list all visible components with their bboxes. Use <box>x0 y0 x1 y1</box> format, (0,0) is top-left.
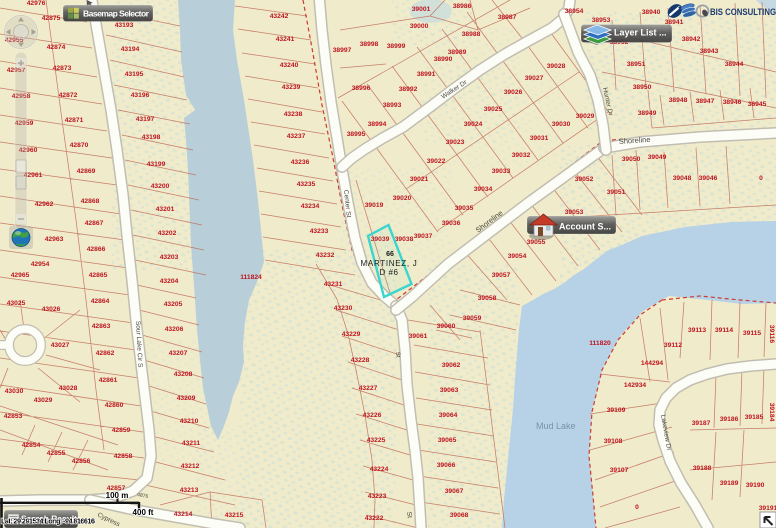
svg-text:St: St <box>405 511 413 518</box>
svg-text:42873: 42873 <box>53 65 72 72</box>
svg-text:43204: 43204 <box>160 278 179 285</box>
svg-text:42862: 42862 <box>96 350 115 357</box>
svg-text:42872: 42872 <box>59 92 78 99</box>
svg-text:43228: 43228 <box>351 357 370 364</box>
svg-text:43207: 43207 <box>169 350 188 357</box>
svg-text:39034: 39034 <box>474 186 493 193</box>
svg-text:43227: 43227 <box>359 385 378 392</box>
svg-text:43224: 43224 <box>370 466 389 473</box>
svg-text:43205: 43205 <box>164 301 183 308</box>
svg-text:38986: 38986 <box>453 3 472 10</box>
svg-text:39033: 39033 <box>492 168 511 175</box>
svg-text:43236: 43236 <box>291 159 310 166</box>
svg-text:43025: 43025 <box>7 300 26 307</box>
svg-text:43235: 43235 <box>297 181 316 188</box>
svg-text:42859: 42859 <box>112 427 131 434</box>
svg-text:43225: 43225 <box>367 437 386 444</box>
svg-text:Account S...: Account S... <box>559 222 611 232</box>
svg-text:42860: 42860 <box>105 402 124 409</box>
svg-text:43226: 43226 <box>363 412 382 419</box>
svg-text:39046: 39046 <box>699 175 718 182</box>
svg-text:38953: 38953 <box>592 17 611 24</box>
svg-text:42854: 42854 <box>22 442 41 449</box>
svg-text:38950: 38950 <box>633 84 652 91</box>
svg-text:39026: 39026 <box>504 89 523 96</box>
svg-text:43196: 43196 <box>131 92 150 99</box>
svg-text:39184: 39184 <box>768 403 775 422</box>
svg-text:39113: 39113 <box>688 327 707 334</box>
svg-text:38946: 38946 <box>723 99 742 106</box>
svg-text:43239: 43239 <box>282 84 301 91</box>
svg-text:39055: 39055 <box>527 239 546 246</box>
svg-text:39028: 39028 <box>547 63 566 70</box>
svg-text:39030: 39030 <box>552 121 571 128</box>
svg-text:0: 0 <box>759 175 763 182</box>
svg-text:39058: 39058 <box>478 295 497 302</box>
svg-text:39108: 39108 <box>604 438 623 445</box>
svg-text:43208: 43208 <box>174 371 193 378</box>
svg-text:43231: 43231 <box>324 281 343 288</box>
svg-text:38940: 38940 <box>642 9 661 16</box>
svg-text:42858: 42858 <box>114 453 133 460</box>
svg-text:43234: 43234 <box>301 203 320 210</box>
svg-text:42865: 42865 <box>89 272 108 279</box>
svg-text:43230: 43230 <box>334 305 353 312</box>
svg-text:42963: 42963 <box>45 236 64 243</box>
svg-text:39068: 39068 <box>450 512 469 519</box>
svg-text:39189: 39189 <box>720 480 739 487</box>
svg-text:38998: 38998 <box>360 41 379 48</box>
svg-text:400 ft: 400 ft <box>133 508 154 517</box>
svg-text:39186: 39186 <box>720 416 739 423</box>
svg-text:38987: 38987 <box>498 14 517 21</box>
svg-text:39053: 39053 <box>565 209 584 216</box>
svg-text:38945: 38945 <box>748 101 767 108</box>
svg-text:43195: 43195 <box>125 71 144 78</box>
svg-text:39114: 39114 <box>715 327 734 334</box>
svg-text:38949: 38949 <box>638 110 657 117</box>
svg-text:38994: 38994 <box>368 121 387 128</box>
svg-text:38954: 38954 <box>565 8 584 15</box>
svg-text:39025: 39025 <box>484 106 503 113</box>
svg-text:39032: 39032 <box>512 152 531 159</box>
svg-text:MARTINEZ, J: MARTINEZ, J <box>361 259 418 268</box>
svg-text:43026: 43026 <box>42 306 61 313</box>
svg-text:38997: 38997 <box>333 47 352 54</box>
svg-text:111820: 111820 <box>589 340 611 347</box>
svg-text:42868: 42868 <box>81 198 100 205</box>
svg-text:38991: 38991 <box>417 71 436 78</box>
svg-text:39187: 39187 <box>692 420 711 427</box>
svg-text:43198: 43198 <box>142 134 161 141</box>
svg-text:39067: 39067 <box>445 488 464 495</box>
svg-text:39031: 39031 <box>530 135 549 142</box>
svg-text:39061: 39061 <box>409 333 428 340</box>
svg-text:42870: 42870 <box>70 142 89 149</box>
svg-text:39029: 39029 <box>576 113 595 120</box>
svg-text:43209: 43209 <box>177 395 196 402</box>
svg-text:39190: 39190 <box>746 482 765 489</box>
svg-text:42864: 42864 <box>91 298 110 305</box>
svg-text:38944: 38944 <box>725 61 744 68</box>
svg-text:42866: 42866 <box>87 246 106 253</box>
svg-text:38947: 38947 <box>696 98 715 105</box>
svg-text:39049: 39049 <box>648 154 667 161</box>
svg-text:42965: 42965 <box>11 272 30 279</box>
svg-text:43237: 43237 <box>287 133 306 140</box>
svg-text:43193: 43193 <box>115 22 134 29</box>
svg-text:39112: 39112 <box>664 342 683 349</box>
svg-text:43194: 43194 <box>121 46 140 53</box>
svg-text:BIS CONSULTING: BIS CONSULTING <box>710 7 776 18</box>
svg-text:39000: 39000 <box>410 23 429 30</box>
svg-text:42875: 42875 <box>42 15 61 22</box>
svg-text:38996: 38996 <box>352 85 371 92</box>
svg-text:St: St <box>394 352 401 359</box>
svg-text:38990: 38990 <box>434 56 453 63</box>
svg-text:43211: 43211 <box>182 440 201 447</box>
svg-text:39022: 39022 <box>427 158 446 165</box>
svg-text:39059: 39059 <box>463 315 482 322</box>
svg-text:42954: 42954 <box>31 261 50 268</box>
svg-text:43238: 43238 <box>284 111 303 118</box>
svg-text:39051: 39051 <box>607 189 626 196</box>
svg-text:111824: 111824 <box>240 274 262 281</box>
svg-text:38951: 38951 <box>627 61 646 68</box>
svg-text:38989: 38989 <box>448 49 467 56</box>
svg-text:39063: 39063 <box>440 387 459 394</box>
svg-text:43223: 43223 <box>368 493 387 500</box>
svg-text:43215: 43215 <box>225 512 244 519</box>
svg-text:38942: 38942 <box>682 36 701 43</box>
svg-text:39019: 39019 <box>365 202 384 209</box>
svg-text:39185: 39185 <box>745 414 764 421</box>
svg-text:38948: 38948 <box>669 97 688 104</box>
svg-text:43210: 43210 <box>180 418 199 425</box>
svg-text:39052: 39052 <box>575 176 594 183</box>
svg-text:39107: 39107 <box>610 467 629 474</box>
svg-text:43214: 43214 <box>174 511 193 518</box>
svg-text:39050: 39050 <box>622 156 641 163</box>
svg-text:43233: 43233 <box>310 228 329 235</box>
svg-text:43202: 43202 <box>158 230 177 237</box>
svg-text:Layer List ...: Layer List ... <box>614 28 667 38</box>
svg-text:39115: 39115 <box>743 330 762 337</box>
svg-text:43200: 43200 <box>151 183 170 190</box>
svg-text:43241: 43241 <box>276 36 295 43</box>
svg-text:39188: 39188 <box>693 465 712 472</box>
svg-text:42855: 42855 <box>47 450 66 457</box>
svg-text:43027: 43027 <box>51 342 70 349</box>
svg-text:43029: 43029 <box>34 397 53 404</box>
svg-text:39062: 39062 <box>442 362 461 369</box>
svg-text:43028: 43028 <box>59 385 78 392</box>
svg-text:42863: 42863 <box>92 323 111 330</box>
svg-text:39036: 39036 <box>442 220 461 227</box>
svg-text:39057: 39057 <box>492 272 511 279</box>
svg-text:42869: 42869 <box>77 168 96 175</box>
svg-text:43242: 43242 <box>270 13 289 20</box>
svg-text:142934: 142934 <box>624 382 647 389</box>
svg-text:42962: 42962 <box>35 201 54 208</box>
svg-text:39048: 39048 <box>673 175 692 182</box>
svg-text:43240: 43240 <box>280 62 299 69</box>
svg-text:Basemap Selector: Basemap Selector <box>83 9 150 19</box>
svg-text:39037: 39037 <box>414 233 433 240</box>
svg-text:43213: 43213 <box>180 487 199 494</box>
svg-text:43229: 43229 <box>342 331 361 338</box>
svg-text:38993: 38993 <box>383 102 402 109</box>
svg-text:42867: 42867 <box>85 220 104 227</box>
svg-text:38995: 38995 <box>347 131 366 138</box>
svg-text:43199: 43199 <box>147 161 166 168</box>
svg-text:39064: 39064 <box>439 412 458 419</box>
svg-text:43197: 43197 <box>136 116 155 123</box>
svg-text:43030: 43030 <box>5 388 24 395</box>
svg-text:39001: 39001 <box>412 6 431 13</box>
svg-text:0: 0 <box>635 504 639 511</box>
svg-text:38992: 38992 <box>399 86 418 93</box>
svg-text:42871: 42871 <box>65 117 84 124</box>
svg-text:39060: 39060 <box>437 323 456 330</box>
svg-text:38999: 38999 <box>387 43 406 50</box>
svg-text:43222: 43222 <box>365 515 384 522</box>
svg-text:Lat: 29.291534 Long: -94.81661: Lat: 29.291534 Long: -94.816616 <box>1 517 95 526</box>
svg-text:39035: 39035 <box>455 205 474 212</box>
svg-text:38988: 38988 <box>462 31 481 38</box>
svg-text:39109: 39109 <box>607 407 626 414</box>
svg-text:39054: 39054 <box>508 253 527 260</box>
svg-text:39191: 39191 <box>759 505 776 512</box>
svg-text:39038: 39038 <box>395 236 414 243</box>
svg-text:D #6: D #6 <box>380 268 399 277</box>
svg-text:43232: 43232 <box>316 252 335 259</box>
svg-text:39065: 39065 <box>438 437 457 444</box>
svg-text:42874: 42874 <box>47 44 66 51</box>
svg-text:38943: 38943 <box>700 48 719 55</box>
svg-text:39020: 39020 <box>393 195 412 202</box>
svg-text:42861: 42861 <box>99 377 118 384</box>
svg-text:42853: 42853 <box>4 413 23 420</box>
svg-text:39023: 39023 <box>446 139 465 146</box>
svg-text:Mud Lake: Mud Lake <box>536 421 576 431</box>
svg-text:39027: 39027 <box>525 75 544 82</box>
svg-text:42976: 42976 <box>27 0 46 7</box>
svg-text:43201: 43201 <box>156 206 175 213</box>
svg-text:43212: 43212 <box>181 463 200 470</box>
svg-text:39116: 39116 <box>768 325 775 344</box>
svg-text:144294: 144294 <box>641 360 664 367</box>
svg-text:100 m: 100 m <box>106 491 129 500</box>
svg-text:66: 66 <box>386 251 394 258</box>
svg-text:43206: 43206 <box>165 326 184 333</box>
svg-text:39021: 39021 <box>410 176 429 183</box>
svg-text:39066: 39066 <box>437 462 456 469</box>
svg-text:42856: 42856 <box>72 458 91 465</box>
svg-text:39024: 39024 <box>464 121 483 128</box>
svg-text:43203: 43203 <box>160 254 179 261</box>
